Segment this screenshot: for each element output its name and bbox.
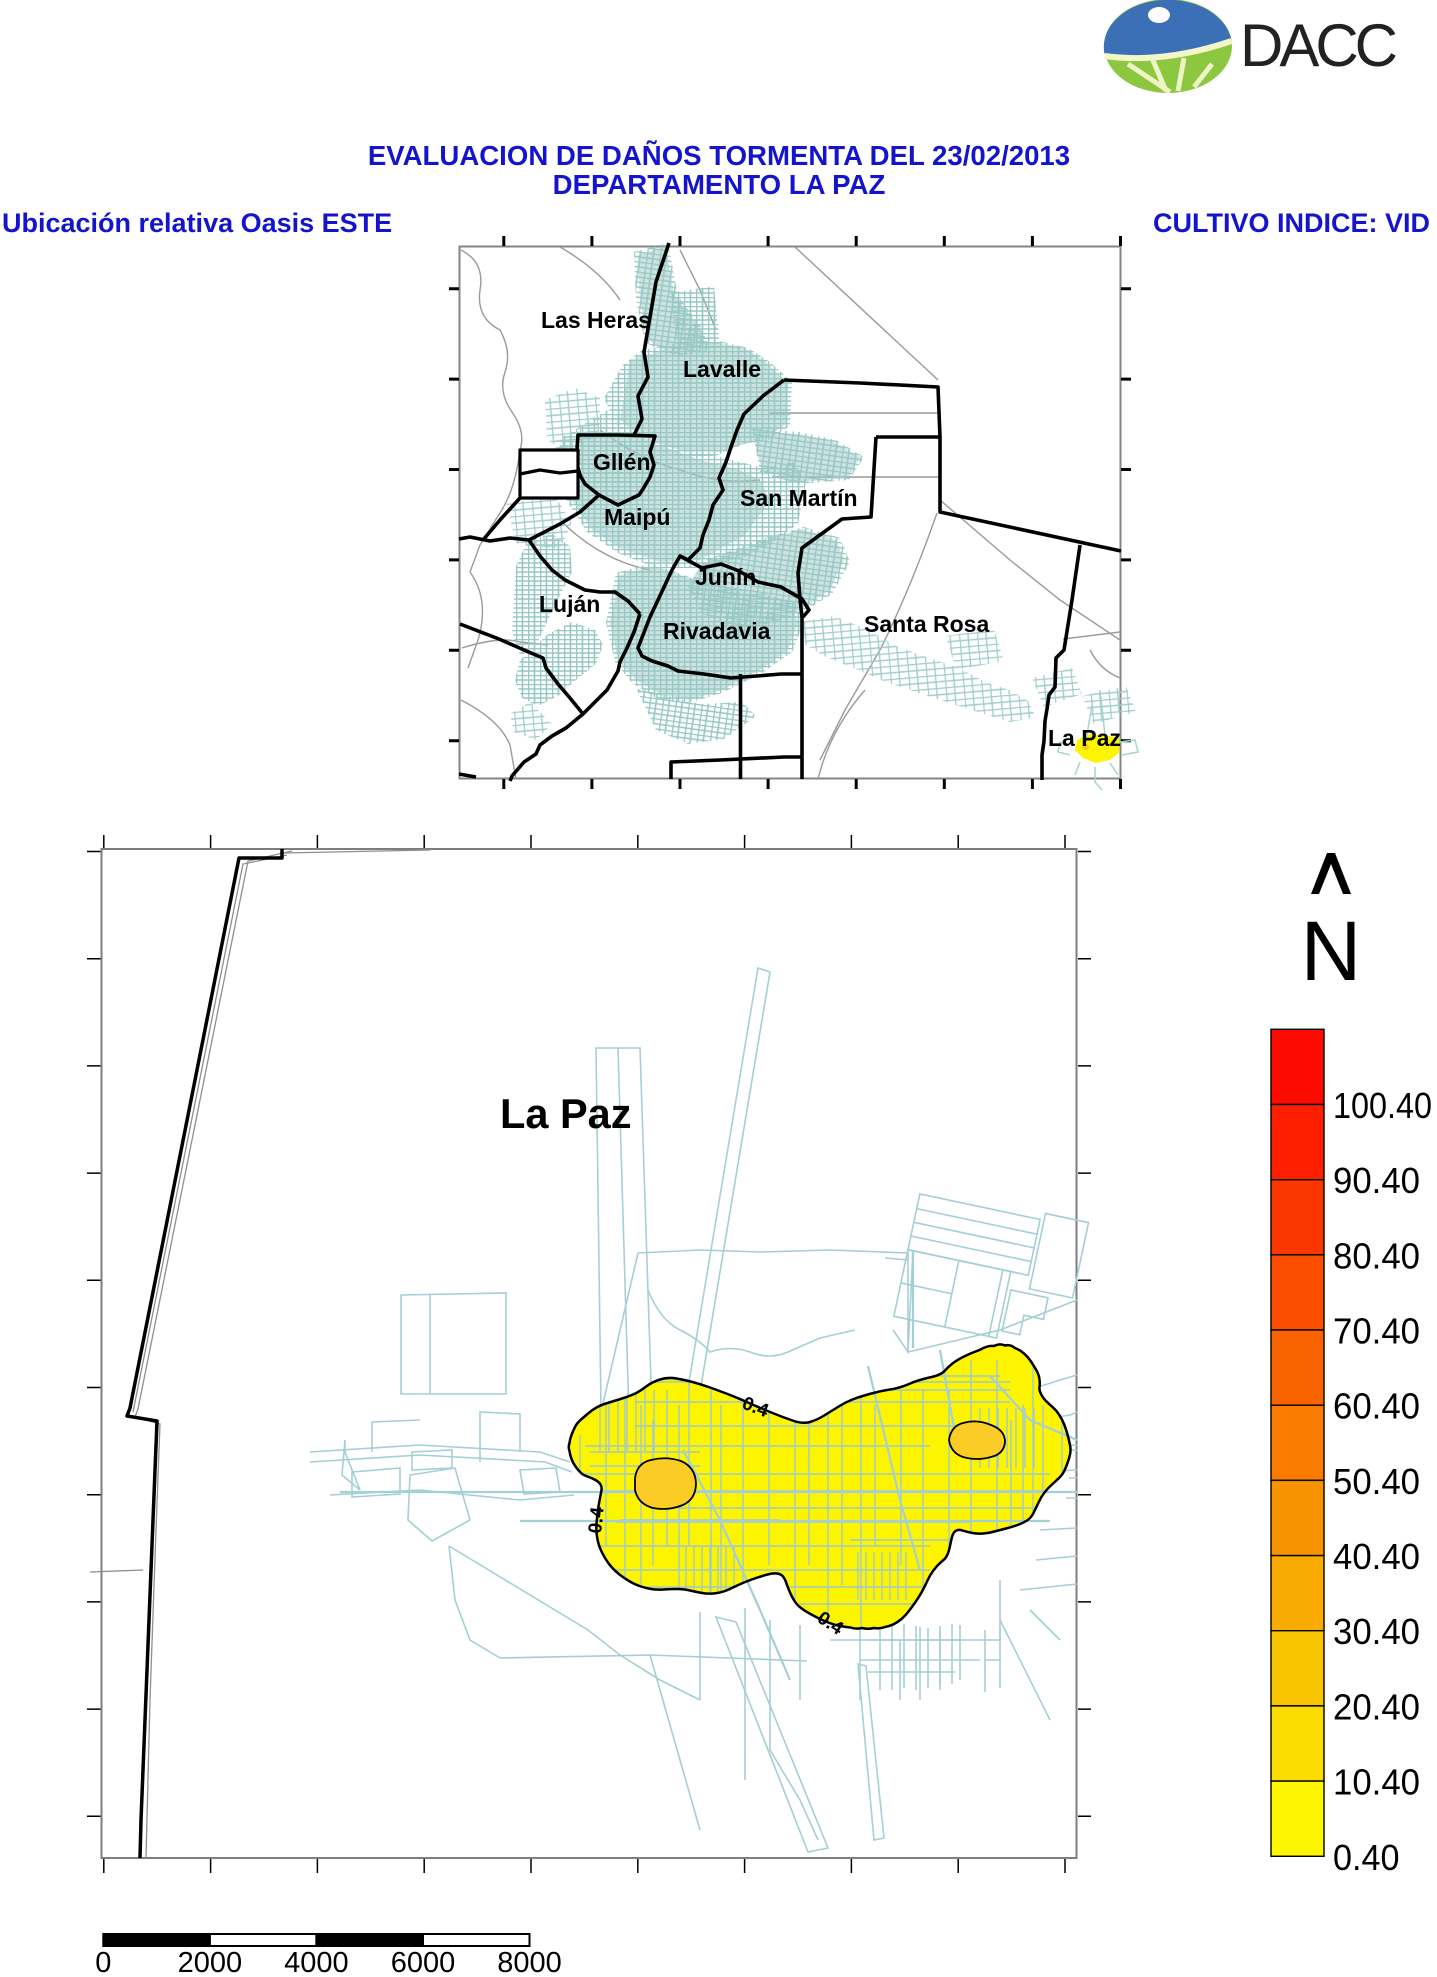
svg-text:CULTIVO INDICE: VID: CULTIVO INDICE: VID [1153, 208, 1430, 238]
svg-text:80.40: 80.40 [1333, 1235, 1420, 1276]
svg-text:0.40: 0.40 [1333, 1837, 1400, 1878]
svg-text:La Paz: La Paz [500, 1090, 631, 1137]
svg-text:N: N [1301, 904, 1362, 998]
svg-text:60.40: 60.40 [1333, 1386, 1420, 1427]
svg-text:90.40: 90.40 [1333, 1160, 1420, 1201]
svg-text:0: 0 [95, 1947, 111, 1977]
svg-text:6000: 6000 [391, 1947, 456, 1977]
svg-text:4000: 4000 [284, 1947, 349, 1977]
svg-text:Ubicación relativa Oasis ESTE: Ubicación relativa Oasis ESTE [2, 208, 392, 238]
svg-text:0.4: 0.4 [585, 1506, 609, 1535]
svg-text:Maipú: Maipú [604, 504, 670, 530]
svg-text:DACC: DACC [1240, 12, 1397, 79]
svg-text:Gllén: Gllén [593, 449, 651, 475]
svg-text:Las Heras: Las Heras [541, 307, 651, 333]
svg-text:100.40: 100.40 [1333, 1085, 1432, 1126]
svg-text:2000: 2000 [178, 1947, 243, 1977]
svg-text:20.40: 20.40 [1333, 1686, 1420, 1727]
svg-text:8000: 8000 [497, 1947, 562, 1977]
svg-text:50.40: 50.40 [1333, 1461, 1420, 1502]
svg-text:La Paz: La Paz [1048, 725, 1121, 751]
svg-text:40.40: 40.40 [1333, 1536, 1420, 1577]
svg-text:30.40: 30.40 [1333, 1611, 1420, 1652]
svg-text:Luján: Luján [539, 591, 600, 617]
svg-text:Rivadavia: Rivadavia [663, 618, 771, 644]
svg-text:Junín: Junín [695, 564, 756, 590]
svg-text:San Martín: San Martín [740, 485, 858, 511]
svg-text:DEPARTAMENTO LA PAZ: DEPARTAMENTO LA PAZ [553, 169, 886, 200]
svg-text:70.40: 70.40 [1333, 1311, 1420, 1352]
svg-text:10.40: 10.40 [1333, 1762, 1420, 1803]
svg-text:Santa Rosa: Santa Rosa [864, 611, 989, 637]
svg-text:EVALUACION DE DAÑOS TORMENTA D: EVALUACION DE DAÑOS TORMENTA DEL 23/02/2… [368, 140, 1070, 171]
svg-text:Lavalle: Lavalle [683, 356, 761, 382]
